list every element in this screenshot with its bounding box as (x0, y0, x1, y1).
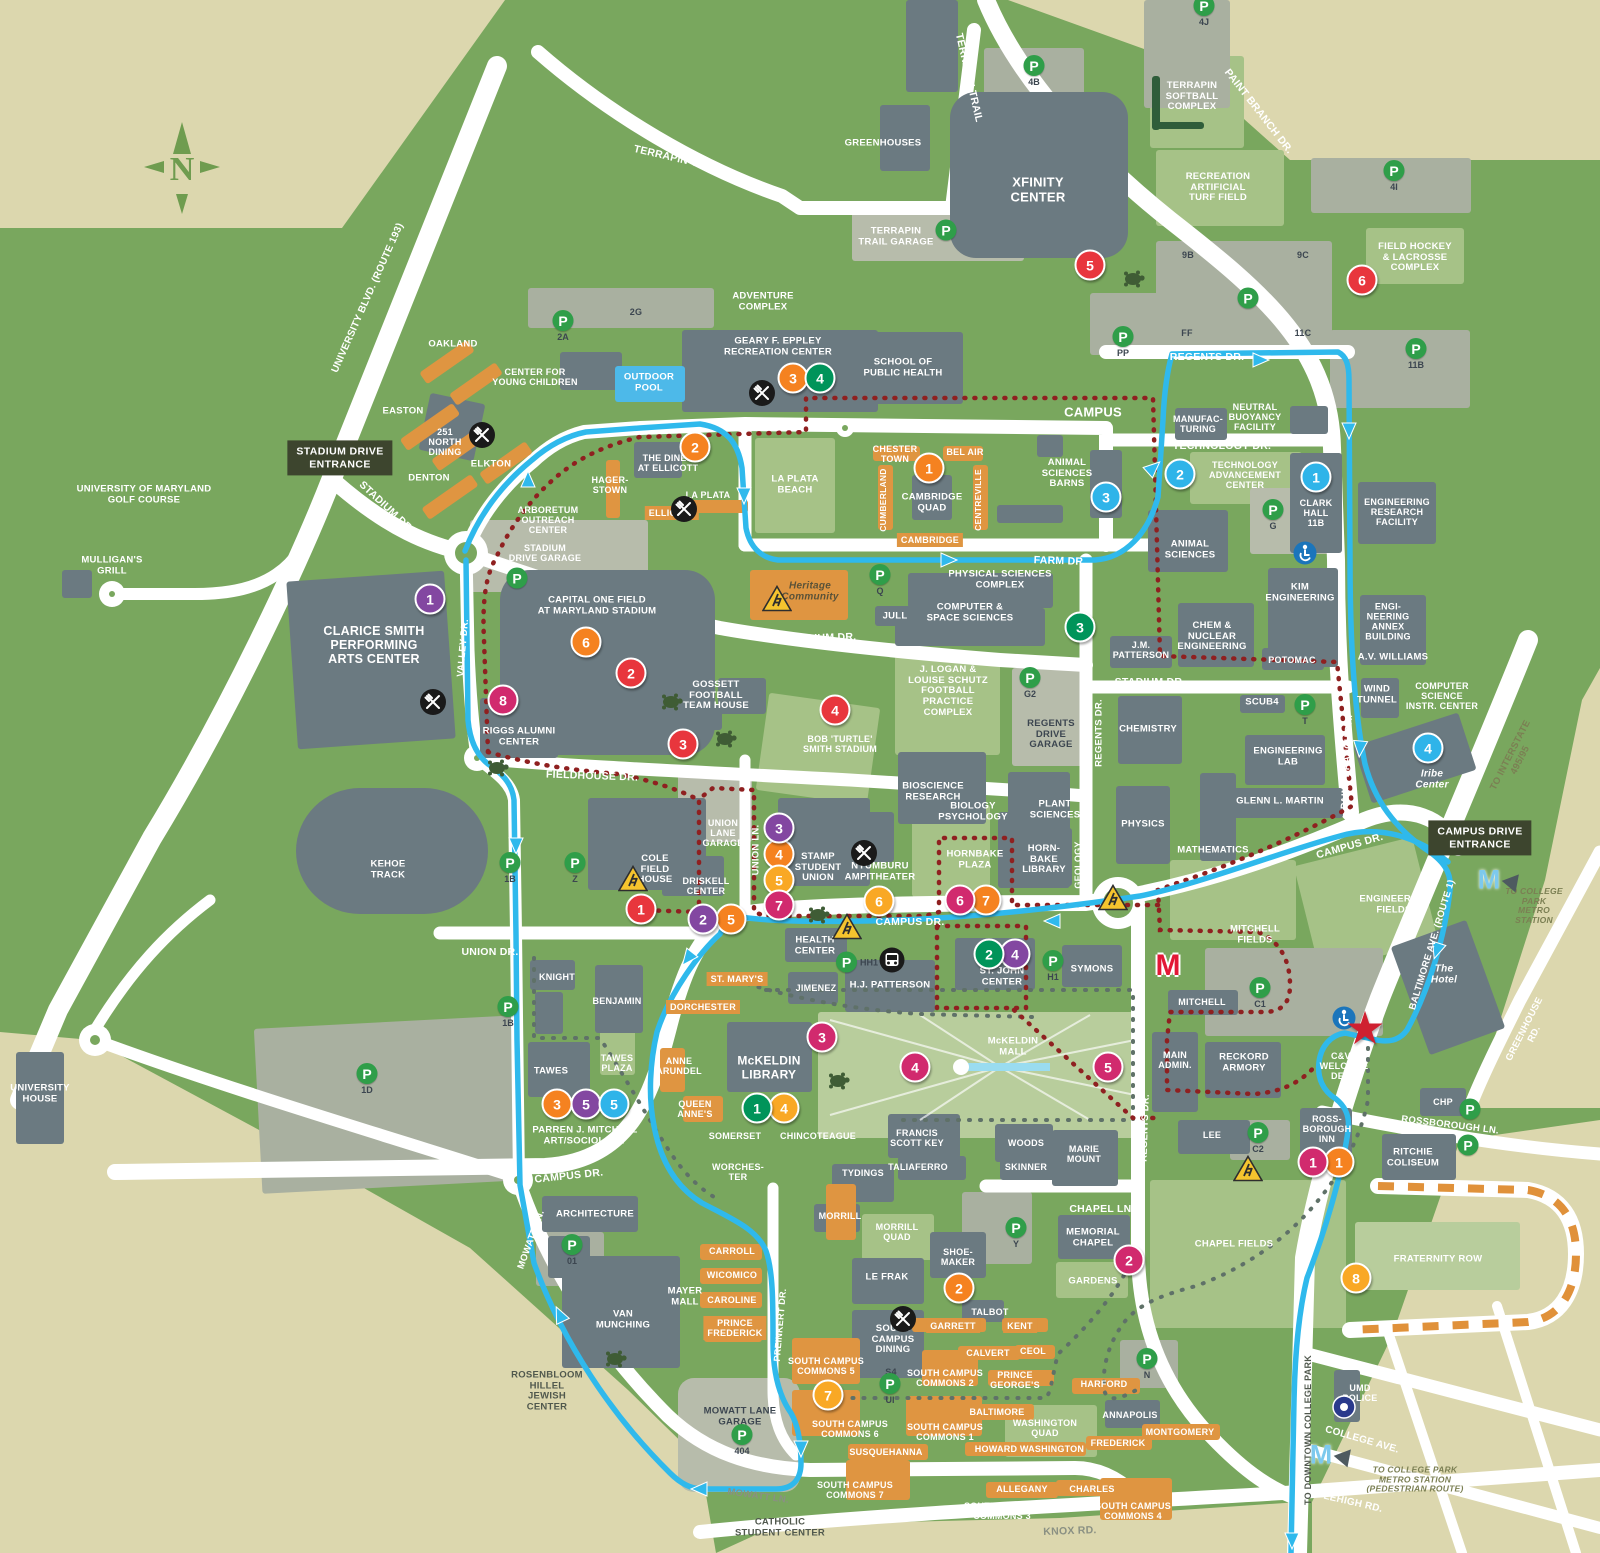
residence-building (906, 1396, 982, 1436)
field-border (1152, 122, 1204, 129)
fountain-circle (953, 1059, 969, 1075)
tour-marker-purple-1: 1 (415, 584, 446, 615)
pool (615, 366, 685, 402)
residence-building (1100, 1478, 1172, 1520)
parking-p-icon: P (562, 1234, 583, 1255)
parking-code: 4B (1024, 77, 1045, 87)
metro-m: M (1310, 1440, 1333, 1471)
parking-icon-HH1: PHH1 (836, 952, 878, 973)
parking-code: 4I (1384, 182, 1405, 192)
residence-building (973, 465, 988, 530)
building (595, 965, 643, 1033)
parking-icon: P (1460, 1099, 1481, 1120)
parking-p-icon: P (936, 220, 957, 241)
residence-building (660, 1048, 685, 1092)
building (542, 1196, 638, 1232)
residence-chip: PRINCE FREDERICK (703, 1316, 766, 1340)
metro-station-icon: M (1478, 865, 1523, 896)
residence-building (1022, 1442, 1086, 1456)
building (1000, 1158, 1056, 1180)
parking-p-icon: P (1137, 1348, 1158, 1369)
tour-marker-pink-8: 8 (488, 685, 519, 716)
parking-code: G2 (1020, 689, 1041, 699)
residence-building (922, 1350, 978, 1386)
roundabout-center (842, 425, 848, 431)
parking-p-icon: P (1458, 1135, 1479, 1156)
tour-marker-pink-4: 4 (900, 1052, 931, 1083)
tour-marker-blue-5: 5 (599, 1089, 630, 1120)
parking-code: 1D (357, 1085, 378, 1095)
residence-building (846, 1460, 910, 1500)
tour-marker-pink-5: 5 (1093, 1052, 1124, 1083)
route-arrow (1044, 914, 1060, 928)
parking-p-icon: P (1460, 1099, 1481, 1120)
building (1334, 1370, 1360, 1422)
building (1358, 482, 1436, 544)
parking-p-icon: P (1384, 160, 1405, 181)
tour-marker-gold-4: 4 (769, 1093, 800, 1124)
parking-icon-01: P01 (562, 1234, 583, 1266)
residence-building (878, 465, 893, 530)
building (500, 570, 715, 755)
field-area (1355, 1222, 1520, 1290)
parking-code: 01 (562, 1256, 583, 1266)
tour-marker-red-4: 4 (820, 695, 851, 726)
parking-p-icon: P (553, 310, 574, 331)
parking-icon-C1: PC1 (1250, 977, 1271, 1009)
building (845, 332, 963, 404)
residence-chip: CARROLL (705, 1244, 759, 1258)
building (562, 1256, 680, 1368)
parking-code: 11B (1406, 360, 1427, 370)
residence-chip: WICOMICO (703, 1268, 761, 1282)
building (995, 1124, 1053, 1162)
building (16, 1052, 64, 1144)
residence-building (419, 340, 475, 385)
parking-code: HH1 (860, 957, 878, 967)
building (1228, 788, 1343, 818)
building (1245, 735, 1325, 785)
parking-code: T (1295, 716, 1316, 726)
building (718, 678, 766, 714)
residence-building (449, 362, 503, 406)
maryland-m-logo: M (1156, 949, 1181, 983)
building (1175, 408, 1227, 440)
map-canvas (0, 0, 1600, 1553)
tour-marker-pink-2: 2 (1114, 1245, 1145, 1276)
residence-building (1142, 1424, 1220, 1440)
building (898, 1156, 966, 1180)
building (62, 570, 92, 598)
tour-marker-pink-3: 3 (807, 1022, 838, 1053)
parking-icon-T: PT (1295, 694, 1316, 726)
building (1152, 1032, 1198, 1112)
tour-marker-red-5: 5 (1075, 250, 1106, 281)
parking-p-icon: P (565, 852, 586, 873)
residence-building (826, 1184, 856, 1240)
residence-chip: GARRETT (926, 1319, 980, 1333)
residence-building (421, 474, 478, 520)
parking-p-icon: P (1263, 499, 1284, 520)
building (950, 92, 1128, 258)
building (1110, 636, 1172, 668)
parking-p-icon: P (1043, 950, 1064, 971)
tour-marker-green-4: 4 (805, 363, 836, 394)
building (852, 812, 894, 862)
field-area (756, 693, 881, 806)
residence-building (606, 460, 620, 518)
parking-icon-Q: PQ (870, 564, 891, 596)
field-area (895, 655, 1000, 755)
building (662, 856, 724, 896)
building (880, 105, 930, 171)
route-arrow (941, 553, 957, 567)
building (1037, 435, 1063, 457)
parking-code: G (1263, 521, 1284, 531)
parking-icon-2A: P2A (553, 310, 574, 342)
parking-code: UI (880, 1395, 901, 1405)
parking-icon-H1: PH1 (1043, 950, 1064, 982)
building (634, 442, 682, 478)
parking-p-icon: P (1006, 1217, 1027, 1238)
parking-p-icon: P (732, 1424, 753, 1445)
field-area (600, 1030, 635, 1075)
parking-code: C2 (1248, 1144, 1269, 1154)
building (1052, 1130, 1118, 1186)
residence-chip: DORCHESTER (666, 1000, 740, 1014)
parking-icon: P (1238, 288, 1259, 309)
parking-p-icon: P (1194, 0, 1215, 16)
building (930, 1232, 986, 1278)
tour-marker-orange-6: 6 (571, 627, 602, 658)
residence-building (1015, 1345, 1055, 1359)
tour-marker-gold-6: 6 (864, 886, 895, 917)
parking-p-icon: P (357, 1063, 378, 1084)
building (1062, 945, 1122, 987)
tour-marker-green-1: 1 (742, 1093, 773, 1124)
parking-icon-Z: PZ (565, 852, 586, 884)
residence-building (848, 1444, 928, 1460)
metro-station-icon: M (1310, 1440, 1355, 1471)
parking-code: 1B (500, 874, 521, 884)
parking-p-icon: P (1020, 667, 1041, 688)
parking-icon: P (507, 568, 528, 589)
field-area (862, 1214, 934, 1260)
building (1105, 1400, 1160, 1428)
residence-chip: KENT (1003, 1319, 1037, 1333)
residence-chip: CAMBRIDGE (897, 533, 963, 547)
parking-icon-4B: P4B (1024, 55, 1045, 87)
parking-icon: P (936, 220, 957, 241)
building (1178, 1120, 1250, 1154)
parking-p-icon: P (880, 1373, 901, 1394)
building (296, 788, 488, 914)
building (1382, 1134, 1456, 1180)
parking-icon-UI: PUI (880, 1373, 901, 1405)
tour-marker-pink-7: 7 (764, 890, 795, 921)
building (895, 608, 1045, 646)
offcampus-area (0, 0, 505, 228)
parking-p-icon: P (1406, 338, 1427, 359)
parking-icon-404: P404 (732, 1424, 753, 1456)
building (1360, 595, 1426, 665)
parking-p-icon: P (498, 996, 519, 1017)
tour-marker-gold-7: 7 (813, 1380, 844, 1411)
building (898, 752, 986, 824)
field-area (1366, 228, 1464, 284)
mall-fountain (967, 1063, 1050, 1071)
residence-building (750, 570, 848, 620)
entrance-badge: CAMPUS DRIVE ENTRANCE (1428, 820, 1531, 855)
parking-code: PP (1113, 348, 1134, 358)
residence-building (873, 446, 920, 461)
building (1240, 695, 1285, 713)
campus-map: UNIVERSITY BLVD. (ROUTE 193)TERRAPIN TRA… (0, 0, 1600, 1553)
metro-arrow-icon (1501, 868, 1525, 892)
parking-p-icon: P (500, 852, 521, 873)
field-area (755, 438, 835, 533)
parking-code: C1 (1250, 999, 1271, 1009)
residence-building (792, 1338, 860, 1384)
building (727, 1022, 812, 1092)
tour-marker-green-2: 2 (974, 939, 1005, 970)
tour-marker-green-3: 3 (1065, 612, 1096, 643)
residence-chip: ST. MARY'S (707, 972, 768, 986)
tour-marker-orange-2: 2 (680, 432, 711, 463)
tour-marker-purple-3: 3 (764, 813, 795, 844)
residence-chip: CAROLINE (703, 1293, 760, 1307)
metro-m: M (1478, 865, 1501, 896)
tour-marker-blue-1: 1 (1301, 462, 1332, 493)
parking-icon-PP: PPP (1113, 326, 1134, 358)
building (1118, 696, 1182, 764)
tour-marker-red-3: 3 (668, 729, 699, 760)
tour-marker-blue-3: 3 (1091, 482, 1122, 513)
parking-icon-G: PG (1263, 499, 1284, 531)
residence-building (965, 1442, 1027, 1456)
parking-code: 4J (1194, 17, 1215, 27)
parking-icon-1B: P1B (498, 996, 519, 1028)
parking-icon-1D: P1D (357, 1063, 378, 1095)
parking-icon-4J: P4J (1194, 0, 1215, 27)
building (852, 1258, 924, 1304)
tour-marker-gold-8: 8 (1341, 1263, 1372, 1294)
residence-building (683, 1096, 723, 1122)
building (1116, 786, 1170, 864)
building (1205, 1042, 1281, 1098)
metro-arrow-icon (1333, 1443, 1357, 1467)
roundabout-center (109, 591, 115, 597)
building (997, 505, 1063, 523)
tour-marker-red-1: 1 (626, 894, 657, 925)
roundabout-center (90, 1035, 100, 1045)
parking-icon-N: PN (1137, 1348, 1158, 1380)
residence-building (1086, 1436, 1152, 1450)
building (906, 0, 958, 92)
building (1361, 678, 1399, 718)
parking-p-icon: P (1024, 55, 1045, 76)
parking-icon-1B: P1B (500, 852, 521, 884)
parking-icon-4I: P4I (1384, 160, 1405, 192)
parking-p-icon: P (1295, 694, 1316, 715)
tour-marker-blue-2: 2 (1165, 459, 1196, 490)
parking-icon-G2: PG2 (1020, 667, 1041, 699)
building (530, 960, 575, 990)
residence-building (986, 1482, 1058, 1498)
field-border (1152, 76, 1160, 130)
tour-marker-orange-3: 3 (542, 1089, 573, 1120)
tour-marker-pink-1: 1 (1298, 1147, 1329, 1178)
tour-marker-orange-2: 2 (944, 1273, 975, 1304)
parking-icon-11B: P11B (1406, 338, 1427, 370)
tour-marker-red-2: 2 (616, 658, 647, 689)
tour-marker-purple-2: 2 (688, 904, 719, 935)
parking-p-icon: P (836, 952, 857, 973)
residence-building (943, 446, 983, 461)
tour-marker-orange-1: 1 (914, 453, 945, 484)
parking-p-icon: P (1238, 288, 1259, 309)
parking-code: 1B (498, 1018, 519, 1028)
parking-p-icon: P (507, 568, 528, 589)
building (1290, 406, 1328, 434)
building (1148, 510, 1228, 572)
welcome-star-icon: ★ (1344, 1005, 1385, 1051)
parking-p-icon: P (870, 564, 891, 585)
parking-code: Z (565, 874, 586, 884)
building (535, 992, 563, 1034)
parking-icon: P (1458, 1135, 1479, 1156)
building (560, 352, 622, 390)
parking-code: 2A (553, 332, 574, 342)
tour-marker-blue-4: 4 (1413, 733, 1444, 764)
parking-code: N (1137, 1370, 1158, 1380)
parking-code: Y (1006, 1239, 1027, 1249)
residence-chip: ELLICOTT (645, 506, 699, 520)
parking-p-icon: P (1113, 326, 1134, 347)
building (908, 573, 1053, 608)
tour-marker-pink-6: 6 (945, 885, 976, 916)
route-arrow (1342, 423, 1356, 439)
parking-icon-Y: PY (1006, 1217, 1027, 1249)
tour-marker-orange-5: 5 (716, 904, 747, 935)
parking-p-icon: P (1248, 1122, 1269, 1143)
parking-p-icon: P (1250, 977, 1271, 998)
entrance-badge: STADIUM DRIVE ENTRANCE (287, 440, 392, 475)
parking-code: Q (870, 586, 891, 596)
residence-building (988, 1370, 1054, 1386)
parking-code: 404 (732, 1446, 753, 1456)
tour-marker-red-6: 6 (1347, 265, 1378, 296)
tour-marker-purple-5: 5 (571, 1089, 602, 1120)
building (1052, 828, 1072, 886)
parking-icon-C2: PC2 (1248, 1122, 1269, 1154)
parking-code: H1 (1043, 972, 1064, 982)
